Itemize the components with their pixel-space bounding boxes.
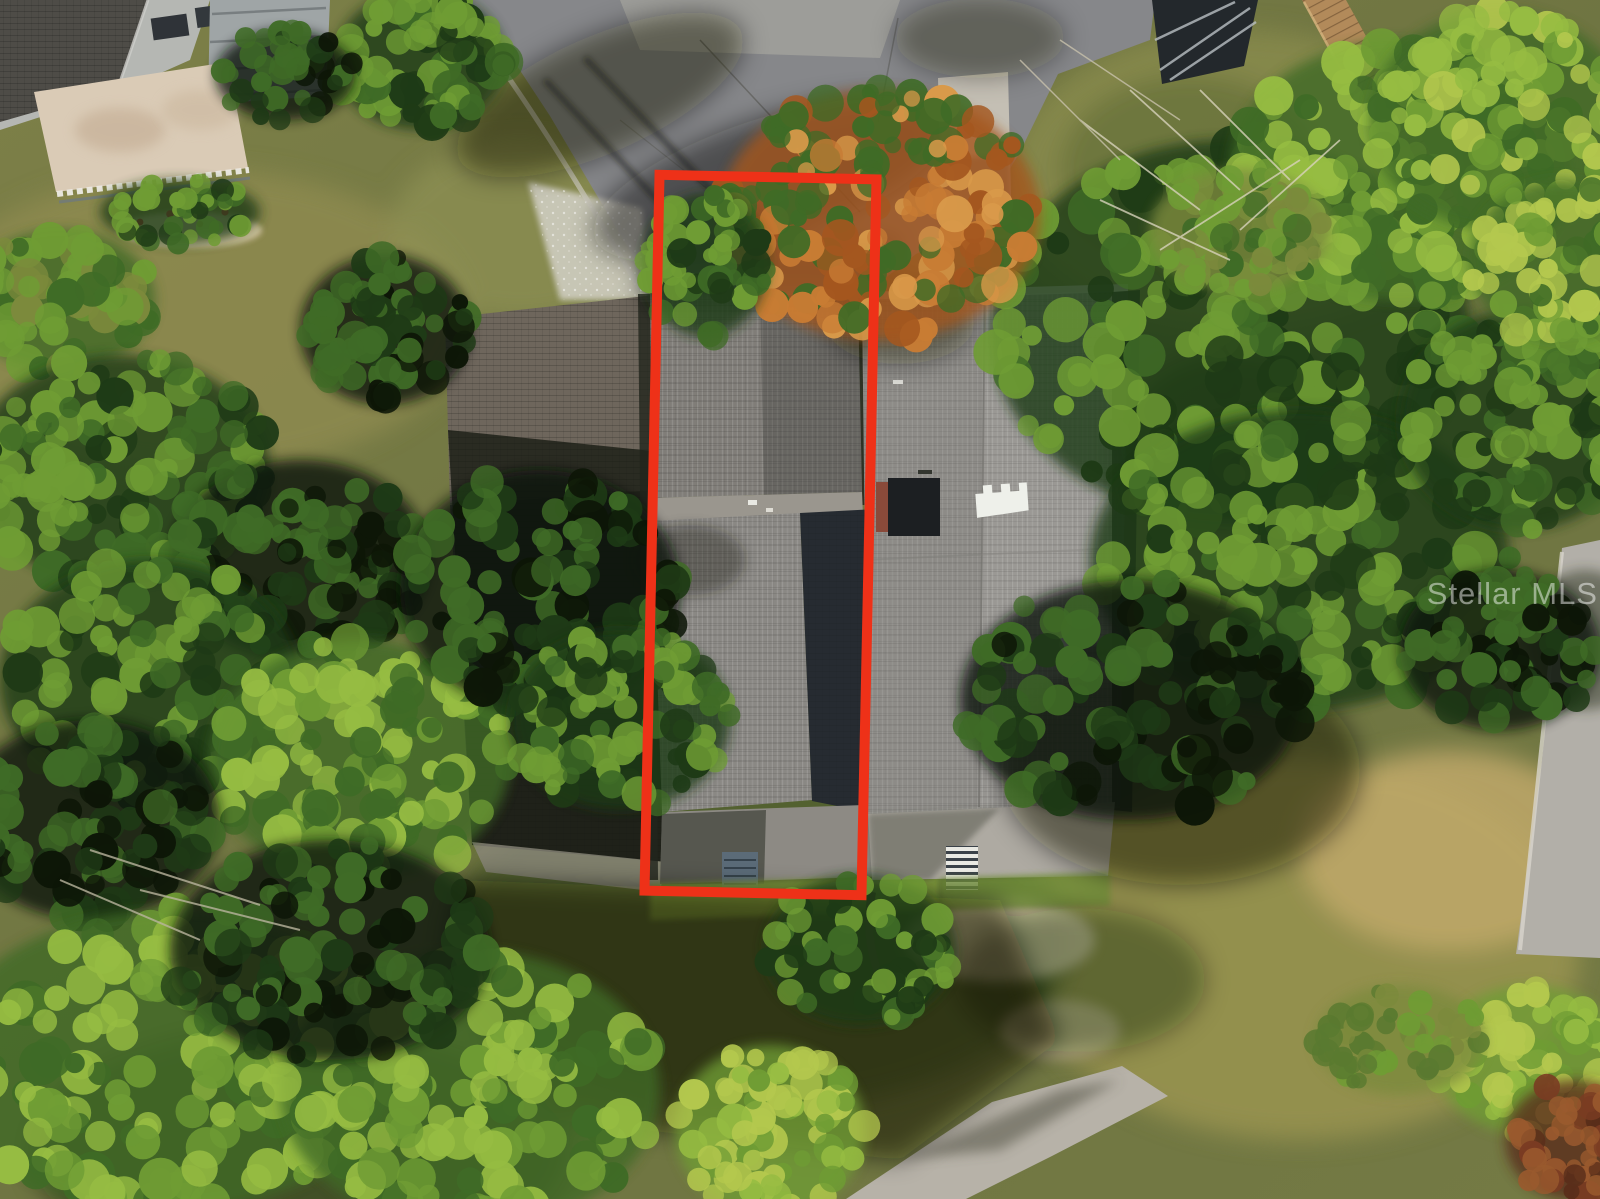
brick-chimney: [876, 482, 888, 532]
courtyard-opening: [888, 478, 940, 536]
mls-watermark: Stellar MLS: [1427, 576, 1598, 612]
aerial-photo: Stellar MLS: [0, 0, 1600, 1199]
aerial-photo-canvas: [0, 0, 1600, 1199]
